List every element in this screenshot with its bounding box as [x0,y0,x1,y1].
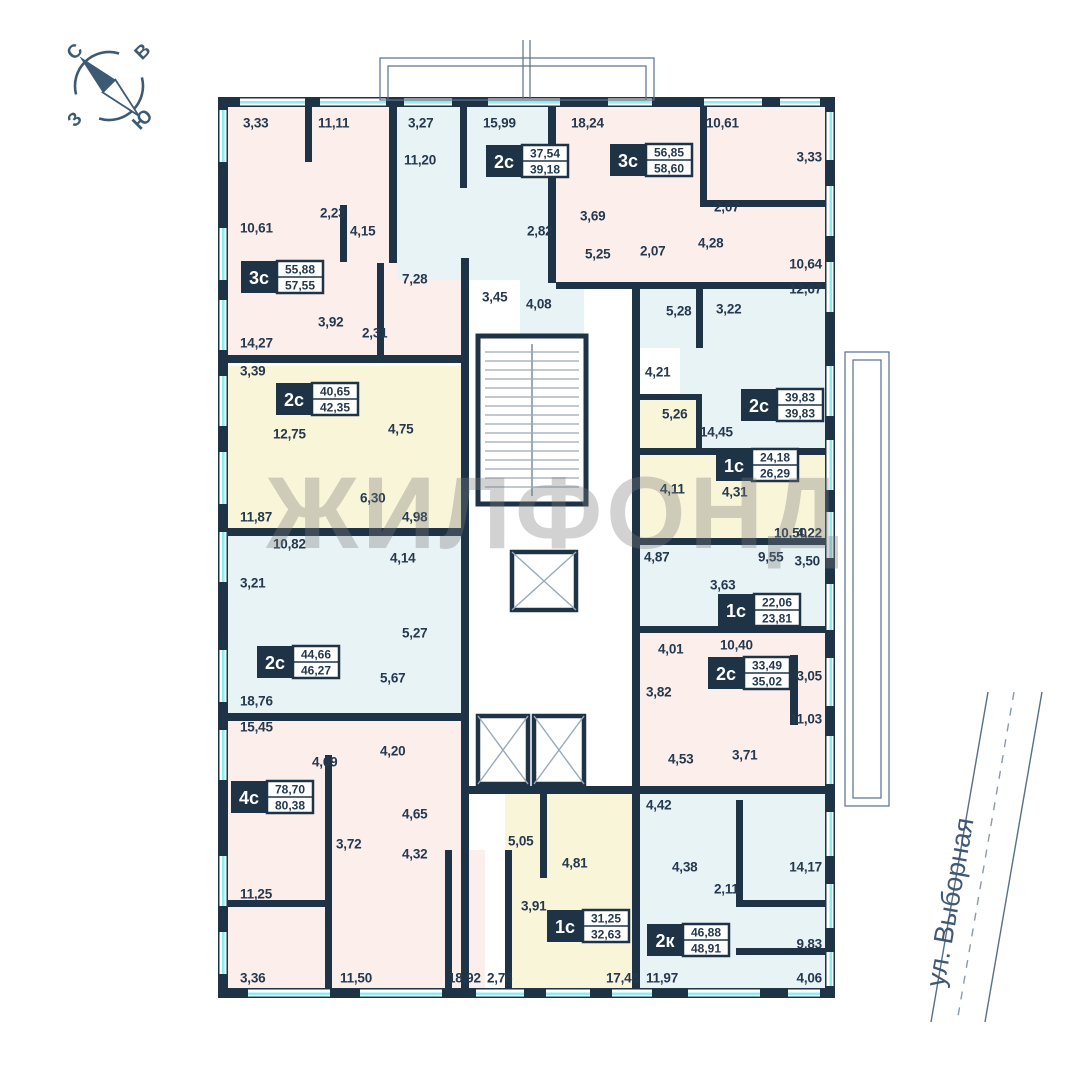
street-name-label: ул. Выборная [920,815,979,989]
street-line-right [985,692,1042,1022]
floor-plan-page: 3,3311,113,2715,9918,2410,613,3311,202,2… [0,0,1080,1080]
compass-letter-west: З [63,108,86,131]
compass: С В Ю З [14,4,204,174]
compass-letter-east: В [131,40,156,65]
